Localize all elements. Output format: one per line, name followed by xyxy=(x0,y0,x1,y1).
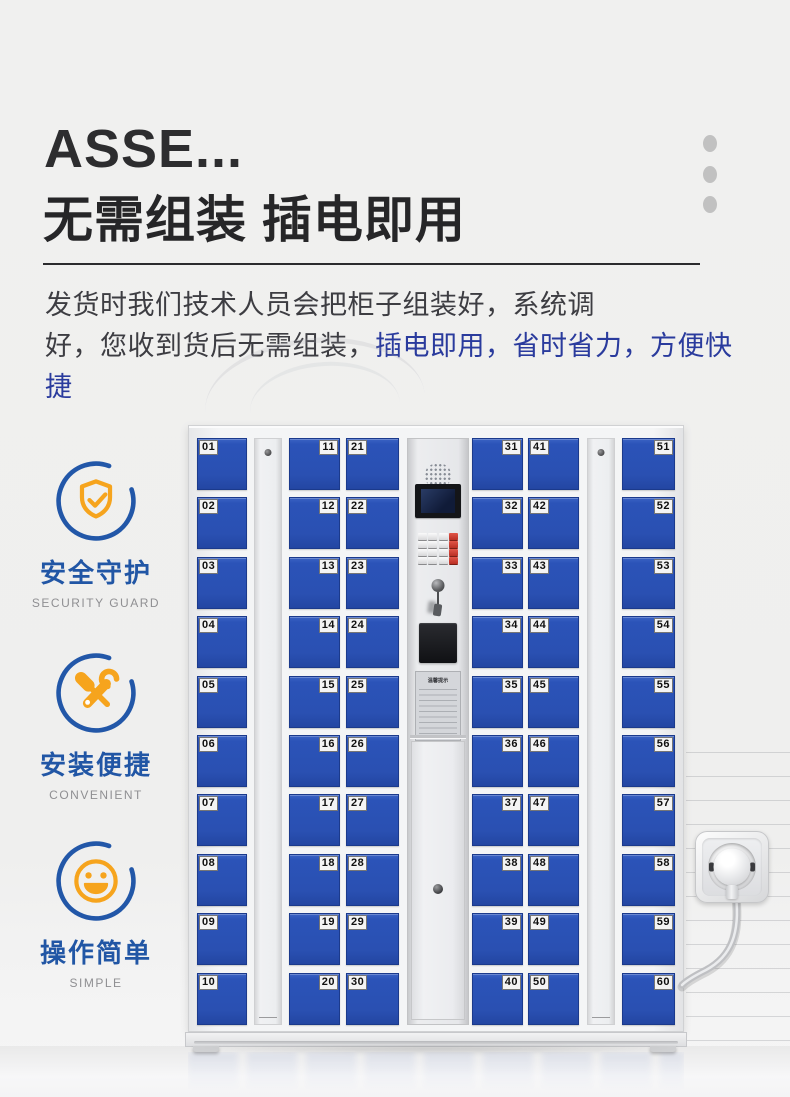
locker-door-41: 41 xyxy=(528,438,579,490)
power-plug xyxy=(714,849,751,886)
locker-door-46: 46 xyxy=(528,735,579,787)
page-title-en: ASSE... xyxy=(44,118,243,180)
door-number-plate: 56 xyxy=(654,737,673,752)
description-line1: 发货时我们技术人员会把柜子组装好，系统调 xyxy=(45,290,595,320)
door-number-plate: 29 xyxy=(348,915,367,930)
locker-door-50: 50 xyxy=(528,973,579,1025)
locker-door-54: 54 xyxy=(622,616,675,668)
door-number-plate: 47 xyxy=(530,796,549,811)
door-number-plate: 41 xyxy=(530,440,549,455)
door-number-plate: 33 xyxy=(502,559,521,574)
doors-grid: 0102030405060708091011121314151617181920… xyxy=(189,438,683,1025)
door-number-plate: 58 xyxy=(654,856,673,871)
door-number-plate: 49 xyxy=(530,915,549,930)
feature-subtitle: SECURITY GUARD xyxy=(19,596,173,610)
smiley-icon xyxy=(53,838,139,924)
door-number-plate: 03 xyxy=(199,559,218,574)
feature-title: 操作简单 xyxy=(19,933,173,970)
product-poster: ASSE... 无需组装 插电即用 发货时我们技术人员会把柜子组装好，系统调 好… xyxy=(0,0,790,1097)
locker-door-09: 09 xyxy=(197,913,247,965)
locker-door-34: 34 xyxy=(472,616,523,668)
floor-reflection xyxy=(188,1052,684,1092)
locker-door-30: 30 xyxy=(346,973,399,1025)
locker-door-19: 19 xyxy=(289,913,340,965)
locker-door-03: 03 xyxy=(197,557,247,609)
door-number-plate: 09 xyxy=(199,915,218,930)
locker-door-04: 04 xyxy=(197,616,247,668)
locker-door-13: 13 xyxy=(289,557,340,609)
door-number-plate: 24 xyxy=(348,618,367,633)
feature-security: 安全守护 SECURITY GUARD xyxy=(19,458,173,610)
door-number-plate: 34 xyxy=(502,618,521,633)
door-number-plate: 17 xyxy=(319,796,338,811)
door-number-plate: 15 xyxy=(319,678,338,693)
door-number-plate: 28 xyxy=(348,856,367,871)
door-number-plate: 45 xyxy=(530,678,549,693)
locker-door-11: 11 xyxy=(289,438,340,490)
locker-door-38: 38 xyxy=(472,854,523,906)
locker-door-55: 55 xyxy=(622,676,675,728)
locker-door-14: 14 xyxy=(289,616,340,668)
door-number-plate: 44 xyxy=(530,618,549,633)
door-number-plate: 52 xyxy=(654,499,673,514)
door-number-plate: 55 xyxy=(654,678,673,693)
door-number-plate: 40 xyxy=(502,975,521,990)
door-number-plate: 12 xyxy=(319,499,338,514)
locker-door-51: 51 xyxy=(622,438,675,490)
locker-door-29: 29 xyxy=(346,913,399,965)
feature-install: 安装便捷 CONVENIENT xyxy=(19,650,173,802)
locker-door-57: 57 xyxy=(622,794,675,846)
feature-title: 安装便捷 xyxy=(19,745,173,782)
door-number-plate: 04 xyxy=(199,618,218,633)
plug-cable-gland xyxy=(726,885,738,899)
locker-door-42: 42 xyxy=(528,497,579,549)
ellipsis-dot xyxy=(703,166,717,183)
door-number-plate: 13 xyxy=(319,559,338,574)
door-number-plate: 06 xyxy=(199,737,218,752)
outlet-recess xyxy=(708,843,756,891)
door-number-plate: 35 xyxy=(502,678,521,693)
page-title-zh: 无需组装 插电即用 xyxy=(43,180,466,252)
door-number-plate: 53 xyxy=(654,559,673,574)
door-number-plate: 37 xyxy=(502,796,521,811)
outlet-notch xyxy=(750,863,755,872)
locker-door-33: 33 xyxy=(472,557,523,609)
door-number-plate: 25 xyxy=(348,678,367,693)
shield-check-icon xyxy=(53,458,139,544)
door-number-plate: 36 xyxy=(502,737,521,752)
locker-door-24: 24 xyxy=(346,616,399,668)
locker-door-37: 37 xyxy=(472,794,523,846)
door-number-plate: 26 xyxy=(348,737,367,752)
locker-door-27: 27 xyxy=(346,794,399,846)
door-number-plate: 11 xyxy=(319,440,338,455)
door-number-plate: 16 xyxy=(319,737,338,752)
locker-door-01: 01 xyxy=(197,438,247,490)
locker-door-17: 17 xyxy=(289,794,340,846)
door-number-plate: 14 xyxy=(319,618,338,633)
locker-door-06: 06 xyxy=(197,735,247,787)
locker-column-3: 21222324252627282930 xyxy=(346,438,399,1025)
locker-door-26: 26 xyxy=(346,735,399,787)
locker-door-10: 10 xyxy=(197,973,247,1025)
door-number-plate: 20 xyxy=(319,975,338,990)
locker-door-20: 20 xyxy=(289,973,340,1025)
ellipsis-dot xyxy=(703,135,717,152)
locker-door-43: 43 xyxy=(528,557,579,609)
door-number-plate: 57 xyxy=(654,796,673,811)
locker-door-02: 02 xyxy=(197,497,247,549)
locker-door-12: 12 xyxy=(289,497,340,549)
locker-door-07: 07 xyxy=(197,794,247,846)
feature-subtitle: CONVENIENT xyxy=(19,788,173,802)
locker-door-48: 48 xyxy=(528,854,579,906)
door-number-plate: 51 xyxy=(654,440,673,455)
power-outlet xyxy=(695,831,769,903)
locker-door-28: 28 xyxy=(346,854,399,906)
locker-door-39: 39 xyxy=(472,913,523,965)
door-number-plate: 18 xyxy=(319,856,338,871)
locker-door-56: 56 xyxy=(622,735,675,787)
door-number-plate: 32 xyxy=(502,499,521,514)
door-number-plate: 39 xyxy=(502,915,521,930)
door-number-plate: 54 xyxy=(654,618,673,633)
locker-door-15: 15 xyxy=(289,676,340,728)
door-number-plate: 42 xyxy=(530,499,549,514)
feature-subtitle: SIMPLE xyxy=(19,976,173,990)
door-number-plate: 27 xyxy=(348,796,367,811)
door-number-plate: 21 xyxy=(348,440,367,455)
door-number-plate: 05 xyxy=(199,678,218,693)
locker-door-32: 32 xyxy=(472,497,523,549)
door-number-plate: 22 xyxy=(348,499,367,514)
door-number-plate: 08 xyxy=(199,856,218,871)
door-number-plate: 23 xyxy=(348,559,367,574)
locker-door-53: 53 xyxy=(622,557,675,609)
door-number-plate: 02 xyxy=(199,499,218,514)
locker-door-52: 52 xyxy=(622,497,675,549)
ellipsis-dot xyxy=(703,196,717,213)
door-number-plate: 43 xyxy=(530,559,549,574)
outlet-inner-plate xyxy=(702,838,762,896)
locker-door-36: 36 xyxy=(472,735,523,787)
locker-door-18: 18 xyxy=(289,854,340,906)
locker-door-21: 21 xyxy=(346,438,399,490)
tools-icon xyxy=(53,650,139,736)
locker-door-47: 47 xyxy=(528,794,579,846)
cabinet-base xyxy=(185,1032,687,1047)
locker-door-23: 23 xyxy=(346,557,399,609)
locker-door-45: 45 xyxy=(528,676,579,728)
locker-door-08: 08 xyxy=(197,854,247,906)
door-number-plate: 30 xyxy=(348,975,367,990)
locker-door-49: 49 xyxy=(528,913,579,965)
door-number-plate: 48 xyxy=(530,856,549,871)
locker-door-44: 44 xyxy=(528,616,579,668)
locker-door-35: 35 xyxy=(472,676,523,728)
locker-door-22: 22 xyxy=(346,497,399,549)
locker-column-2: 11121314151617181920 xyxy=(289,438,340,1025)
feature-title: 安全守护 xyxy=(19,553,173,590)
locker-door-25: 25 xyxy=(346,676,399,728)
locker-column-4: 31323334353637383940 xyxy=(472,438,523,1025)
door-number-plate: 46 xyxy=(530,737,549,752)
locker-cabinet: 温馨提示 01020304050607080910111213141516171… xyxy=(188,425,684,1032)
door-number-plate: 38 xyxy=(502,856,521,871)
locker-door-40: 40 xyxy=(472,973,523,1025)
locker-column-1: 01020304050607080910 xyxy=(197,438,247,1025)
door-number-plate: 50 xyxy=(530,975,549,990)
locker-door-16: 16 xyxy=(289,735,340,787)
door-number-plate: 19 xyxy=(319,915,338,930)
locker-door-31: 31 xyxy=(472,438,523,490)
feature-easy: 操作简单 SIMPLE xyxy=(19,838,173,990)
locker-column-5: 41424344454647484950 xyxy=(528,438,579,1025)
door-number-plate: 31 xyxy=(502,440,521,455)
door-number-plate: 07 xyxy=(199,796,218,811)
divider-line xyxy=(43,263,700,265)
door-number-plate: 10 xyxy=(199,975,218,990)
door-number-plate: 01 xyxy=(199,440,218,455)
locker-door-05: 05 xyxy=(197,676,247,728)
